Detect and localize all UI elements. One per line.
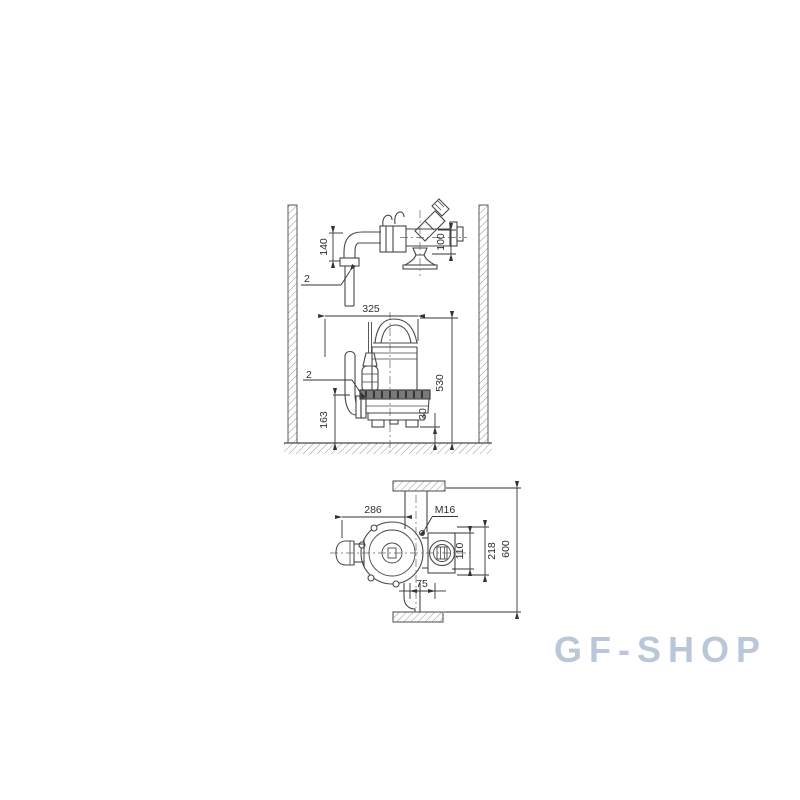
branch-flange bbox=[432, 199, 449, 216]
pipe-elbow-outer bbox=[344, 232, 381, 258]
dim-325-label: 325 bbox=[362, 303, 380, 315]
pump-body-top bbox=[359, 522, 425, 587]
dim-530-label: 530 bbox=[434, 374, 446, 392]
cable-gland bbox=[362, 322, 378, 392]
dim-286-label: 286 bbox=[364, 504, 382, 516]
ref-2-label-middle: 2 bbox=[306, 369, 312, 381]
ref-2-label-upper: 2 bbox=[304, 273, 310, 285]
pump-side-view bbox=[345, 312, 430, 452]
motor-body bbox=[372, 347, 417, 390]
dim-140-label: 140 bbox=[318, 238, 330, 256]
pipe-elbow-inner bbox=[355, 243, 381, 258]
valve-stub bbox=[457, 227, 463, 241]
dim-100-label: 100 bbox=[435, 233, 447, 251]
pipework-view bbox=[340, 199, 467, 306]
clamp-band bbox=[360, 390, 430, 399]
dim-75-label: 75 bbox=[416, 578, 428, 590]
thread-m16-label: M16 bbox=[435, 504, 456, 516]
pump-plan-view bbox=[330, 481, 470, 622]
dim-600-label: 600 bbox=[500, 540, 512, 558]
pump-handle bbox=[373, 319, 418, 343]
wall-section-bottom bbox=[393, 612, 443, 622]
gf-shop-watermark: GF-SHOP bbox=[554, 629, 767, 671]
pipe-collar bbox=[340, 258, 359, 266]
guide-claw bbox=[380, 212, 406, 252]
m16-bolt bbox=[420, 531, 425, 536]
guide-rail-bracket bbox=[404, 583, 415, 612]
pump-dimensional-drawing: 140 100 2 bbox=[0, 0, 800, 800]
dim-30-label: 30 bbox=[417, 408, 429, 420]
dim-110-label: 110 bbox=[454, 542, 466, 559]
wall-section-top bbox=[393, 481, 445, 491]
product-dimension-image: 140 100 2 bbox=[0, 0, 800, 800]
pit-section bbox=[284, 205, 492, 454]
dim-218-label: 218 bbox=[486, 542, 498, 560]
dim-163-label: 163 bbox=[318, 411, 330, 429]
